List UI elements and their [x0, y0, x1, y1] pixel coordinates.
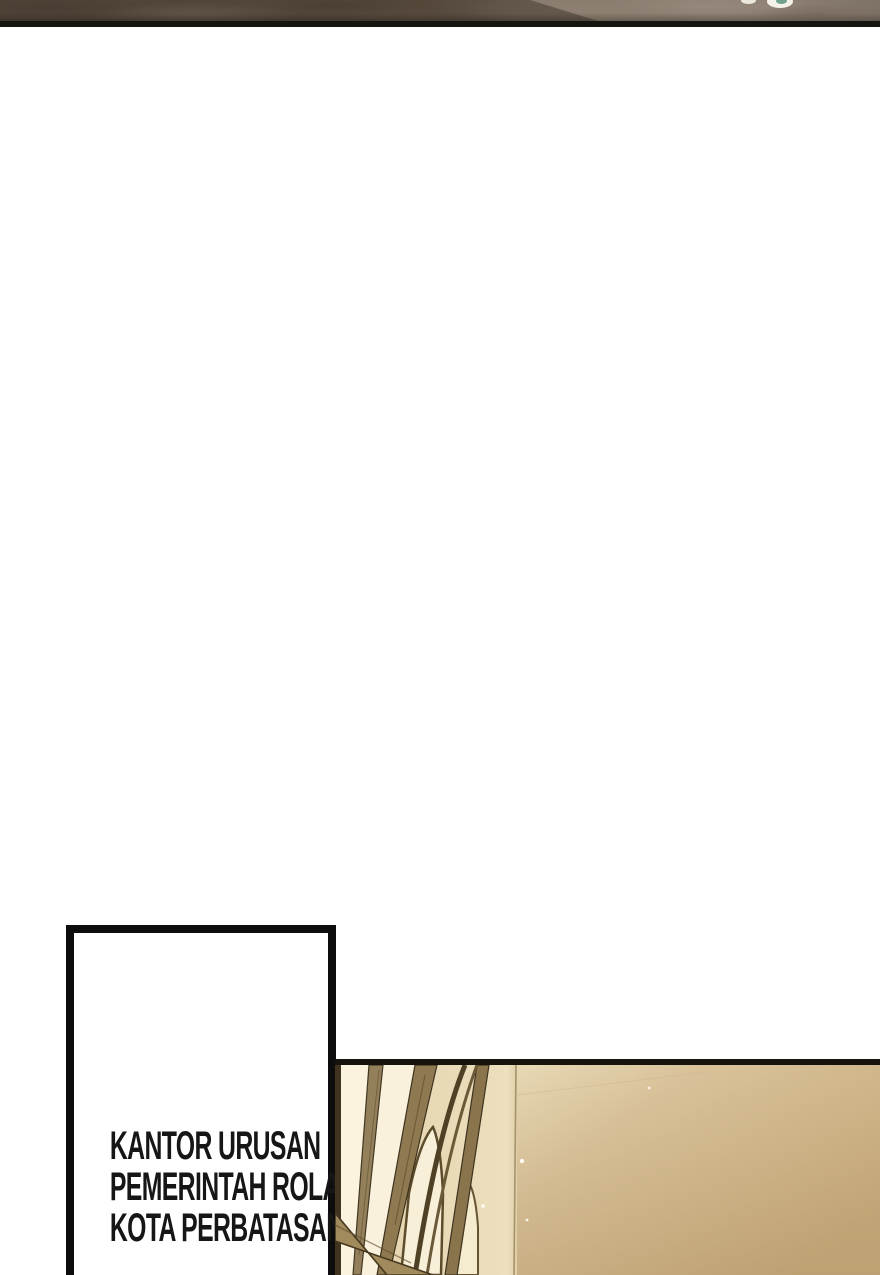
- cutoff-bead-small: [741, 0, 756, 4]
- webtoon-page: KANTOR URUSAN PEMERINTAH ROLAND, KOTA PE…: [0, 0, 880, 1275]
- previous-panel-bottom-strip: [0, 0, 880, 21]
- caption-line-1: KANTOR URUSAN: [110, 1126, 292, 1167]
- sparkle-1: [520, 1159, 524, 1163]
- caption-line-2: PEMERINTAH ROLAND,: [110, 1167, 292, 1208]
- gothic-window-illustration: [335, 1065, 880, 1275]
- strip-bottom-shadow: [0, 13, 880, 21]
- wall-shading: [505, 1065, 880, 1275]
- caption-text: KANTOR URUSAN PEMERINTAH ROLAND, KOTA PE…: [110, 1126, 292, 1249]
- sparkle-2: [481, 1204, 485, 1208]
- panel-divider-rule: [0, 21, 880, 27]
- bead-teal-highlight: [776, 0, 787, 4]
- caption-line-3: KOTA PERBATASAN: [110, 1208, 292, 1249]
- interior-panel: [335, 1059, 880, 1275]
- sparkle-4: [648, 1087, 651, 1090]
- cutoff-bead-large: [767, 0, 793, 8]
- caption-box: KANTOR URUSAN PEMERINTAH ROLAND, KOTA PE…: [66, 925, 336, 1275]
- sparkle-3: [526, 1219, 529, 1222]
